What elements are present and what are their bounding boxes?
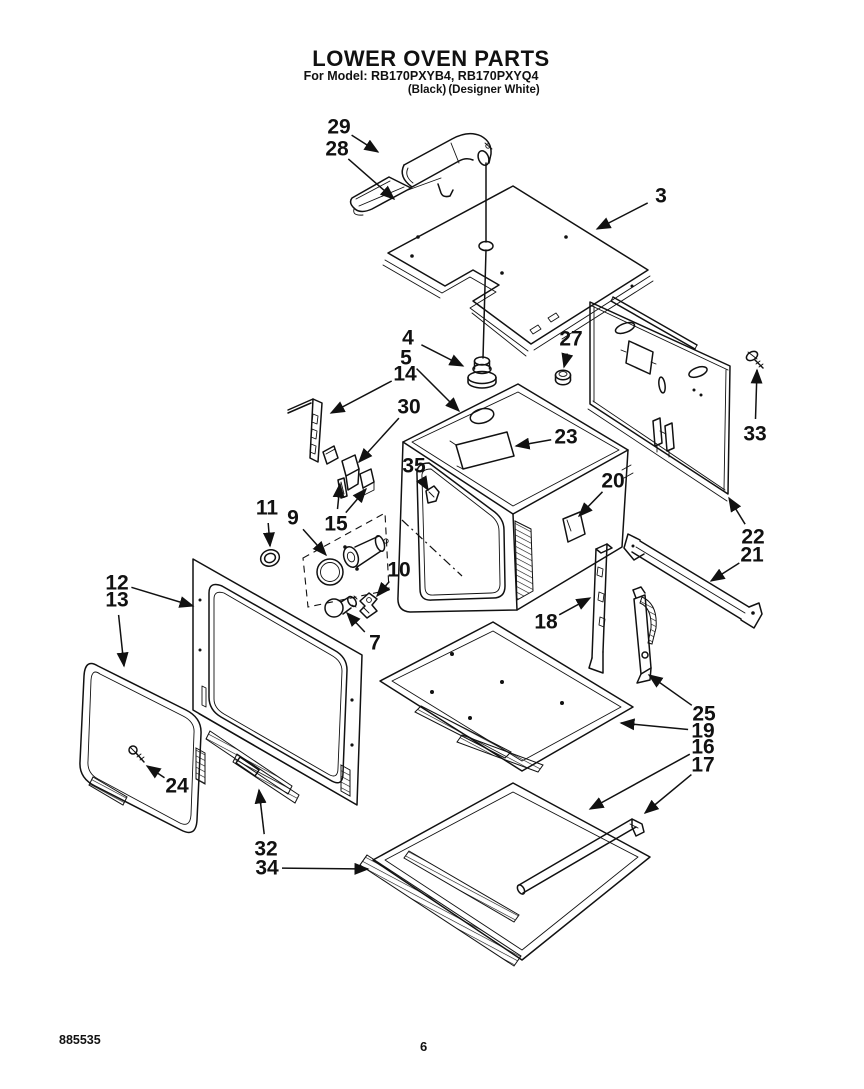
document-number: 885535 <box>59 1033 101 1047</box>
leader-line-14 <box>331 381 392 413</box>
callout-34: 34 <box>255 857 279 880</box>
leader-line-25 <box>649 675 692 705</box>
leader-line-27 <box>564 354 567 367</box>
callout-21: 21 <box>740 544 764 567</box>
callout-28: 28 <box>325 138 349 161</box>
callout-15: 15 <box>324 513 348 536</box>
callout-18: 18 <box>534 611 558 634</box>
bulb-part <box>325 595 358 617</box>
inner-panel-part <box>380 622 633 772</box>
leader-line-7 <box>347 613 365 632</box>
leader-line-29 <box>352 135 378 152</box>
front-frame-part <box>193 559 362 805</box>
leader-line-22 <box>729 498 745 524</box>
grommet-part <box>468 357 496 388</box>
leader-line-23 <box>516 440 551 446</box>
leader-line-30 <box>359 418 399 462</box>
callout-14: 14 <box>393 363 417 386</box>
manual-page: LOWER OVEN PARTS For Model: RB170PXYB4, … <box>0 0 864 1089</box>
vent-deflector-part <box>351 177 441 215</box>
leader-line-10 <box>377 582 389 597</box>
leader-line-12 <box>131 587 193 606</box>
callout-33: 33 <box>743 423 766 446</box>
nut-part <box>556 370 571 385</box>
page-number: 6 <box>420 1039 427 1054</box>
leader-line-24 <box>147 766 165 778</box>
side-bracket-part <box>288 399 322 462</box>
handle-rod-part <box>516 819 644 895</box>
clip-20-part <box>563 512 585 542</box>
leader-line-18 <box>559 598 590 615</box>
leader-line-5 <box>417 369 459 411</box>
oven-cavity-part <box>398 384 633 612</box>
leader-line-4 <box>421 345 463 366</box>
callout-20: 20 <box>601 470 624 493</box>
leader-line-21 <box>711 563 739 581</box>
callout-9: 9 <box>287 507 299 530</box>
leader-line-11 <box>268 523 270 546</box>
callout-35: 35 <box>402 455 426 478</box>
rack-support-part <box>589 544 612 673</box>
leader-line-19 <box>621 723 688 730</box>
callout-29: 29 <box>327 116 350 139</box>
leader-line-16 <box>590 754 690 809</box>
leader-line-34 <box>282 868 368 869</box>
bottom-trim-part <box>206 731 299 803</box>
leader-line-20 <box>579 492 603 516</box>
callout-30: 30 <box>397 396 420 419</box>
callout-7: 7 <box>369 632 381 655</box>
callout-11: 11 <box>256 497 279 520</box>
callout-17: 17 <box>691 754 714 777</box>
socket-clip-part <box>360 593 377 618</box>
leader-line-13 <box>119 615 124 666</box>
exploded-parts-diagram: 2928345143023273520332221119151071213243… <box>0 0 864 1089</box>
leader-line-3 <box>597 203 648 229</box>
callout-10: 10 <box>387 559 410 582</box>
callout-23: 23 <box>554 426 577 449</box>
screw-24-part <box>129 746 144 762</box>
leader-line-32 <box>259 790 264 834</box>
callout-3: 3 <box>655 185 667 208</box>
leader-line-33 <box>756 370 758 419</box>
leader-line-28 <box>348 159 394 199</box>
latch-part <box>633 587 656 683</box>
door-gasket-part <box>80 664 201 833</box>
seal-ring-part <box>258 547 281 569</box>
leader-line-15 <box>346 489 366 513</box>
top-opening-part <box>450 432 514 469</box>
screw-33-part <box>745 350 763 368</box>
callout-24: 24 <box>165 775 189 798</box>
leader-line-17 <box>645 775 691 813</box>
callout-27: 27 <box>559 328 582 351</box>
callout-13: 13 <box>105 589 128 612</box>
bottom-panel-part <box>373 783 650 960</box>
